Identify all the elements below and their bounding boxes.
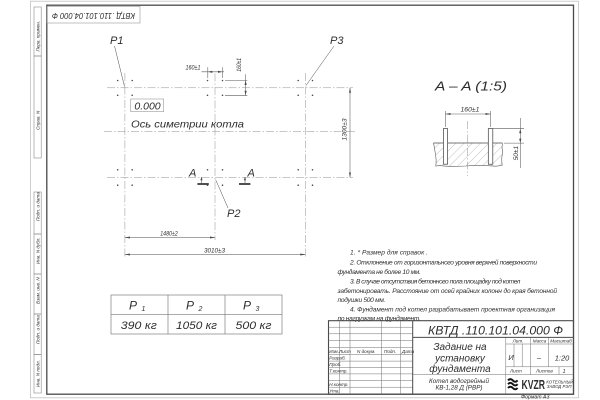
svg-text:Разраб.: Разраб.	[329, 356, 346, 361]
svg-text:390 кг: 390 кг	[121, 320, 158, 332]
svg-text:1300±3: 1300±3	[342, 118, 349, 141]
svg-text:1050 кг: 1050 кг	[176, 320, 218, 332]
svg-text:установку: установку	[434, 353, 486, 364]
svg-text:1480±2: 1480±2	[160, 230, 178, 237]
svg-text:Утв.: Утв.	[329, 388, 339, 393]
svg-text:Перв. примен.: Перв. примен.	[36, 21, 41, 52]
svg-text:–: –	[536, 353, 542, 362]
svg-text:Подп. и дата: Подп. и дата	[36, 192, 41, 221]
svg-text:Справ. N: Справ. N	[36, 110, 41, 130]
svg-text:Инв. N подл.: Инв. N подл.	[36, 360, 41, 387]
svg-text:Лит.: Лит.	[512, 339, 524, 344]
svg-text:P3: P3	[330, 35, 344, 47]
svg-text:Т.контр.: Т.контр.	[329, 368, 348, 373]
svg-text:Изм.Лист: Изм.Лист	[329, 349, 351, 354]
svg-text:фундамента не более 10 мм.: фундамента не более 10 мм.	[338, 268, 421, 276]
svg-text:Задание на: Задание на	[433, 342, 487, 353]
svg-text:3010±3: 3010±3	[204, 248, 226, 255]
svg-text:KVZR: KVZR	[522, 378, 546, 392]
svg-text:A: A	[188, 168, 196, 180]
svg-text:ЗАВОД РЭП: ЗАВОД РЭП	[547, 384, 573, 389]
svg-text:Дата: Дата	[401, 349, 415, 354]
svg-text:50±1: 50±1	[513, 146, 520, 161]
svg-text:Проб.: Проб.	[329, 362, 341, 367]
svg-text:Ось симетрии котла: Ось симетрии котла	[131, 119, 244, 131]
svg-text:P1: P1	[110, 35, 123, 47]
svg-text:Масштаб: Масштаб	[550, 339, 572, 344]
svg-text:160±1: 160±1	[236, 58, 243, 72]
svg-text:500 кг: 500 кг	[236, 320, 273, 332]
svg-text:A: A	[247, 168, 255, 180]
svg-text:Взам. инв. N: Взам. инв. N	[36, 277, 41, 304]
svg-text:Инв. N дубл.: Инв. N дубл.	[36, 237, 41, 264]
svg-text:2. Отклонение от горизонтально: 2. Отклонение от горизонтального уровня …	[349, 258, 537, 266]
svg-text:N докум.: N докум.	[357, 349, 376, 354]
svg-text:A – A (1:5): A – A (1:5)	[434, 79, 507, 93]
svg-text:3. В случае отсутствия бетонно: 3. В случае отсутствия бетонного пола пл…	[350, 278, 521, 286]
svg-text:1: 1	[563, 369, 566, 375]
svg-text:Масса: Масса	[533, 339, 547, 344]
svg-text:фундамента: фундамента	[429, 363, 491, 375]
svg-text:забетонировать. Расстояние от: забетонировать. Расстояние от осей крайн…	[337, 287, 558, 295]
svg-text:Подп. и дата: Подп. и дата	[36, 315, 41, 344]
svg-text:КВТД .110.101.04.000 Ф: КВТД .110.101.04.000 Ф	[52, 11, 135, 21]
svg-text:Подп.: Подп.	[384, 349, 396, 354]
svg-text:КВ-1,28 Д (РВР): КВ-1,28 Д (РВР)	[436, 385, 483, 392]
svg-text:P2: P2	[227, 208, 240, 220]
svg-text:160±1: 160±1	[461, 107, 480, 114]
svg-text:Н.контр.: Н.контр.	[329, 382, 348, 387]
svg-text:0.000: 0.000	[134, 100, 160, 112]
svg-text:Формат А3: Формат А3	[521, 395, 549, 400]
svg-text:1:20: 1:20	[555, 354, 570, 363]
svg-text:1. * Размер для справок .: 1. * Размер для справок .	[350, 249, 428, 257]
svg-text:подушки 500 мм.: подушки 500 мм.	[338, 296, 386, 304]
svg-text:Листов: Листов	[535, 369, 553, 374]
svg-text:160±1: 160±1	[186, 64, 201, 71]
svg-text:КВТД .110.101.04.000 Ф: КВТД .110.101.04.000 Ф	[428, 323, 563, 337]
svg-text:Лист: Лист	[509, 369, 522, 374]
svg-text:И: И	[508, 353, 514, 362]
svg-text:4. Фундамент под котел разраба: 4. Фундамент под котел разрабатывает про…	[350, 306, 555, 314]
